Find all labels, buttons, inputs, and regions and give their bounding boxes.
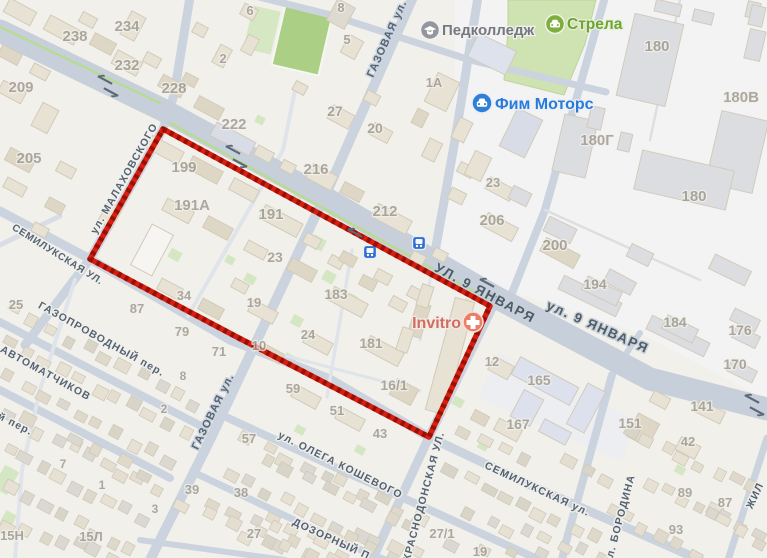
svg-text:51: 51 xyxy=(330,403,344,418)
svg-text:39: 39 xyxy=(185,482,199,497)
svg-text:15Н: 15Н xyxy=(0,528,24,543)
svg-text:205: 205 xyxy=(16,150,41,167)
svg-text:8: 8 xyxy=(180,369,187,383)
svg-text:25: 25 xyxy=(9,297,23,312)
svg-text:238: 238 xyxy=(62,28,87,45)
svg-text:71: 71 xyxy=(212,344,226,359)
svg-text:2: 2 xyxy=(161,402,168,416)
svg-text:5: 5 xyxy=(343,32,350,47)
svg-text:167: 167 xyxy=(506,416,530,432)
svg-text:234: 234 xyxy=(114,18,140,35)
svg-text:93: 93 xyxy=(669,522,683,537)
svg-text:15Л: 15Л xyxy=(79,529,103,544)
svg-text:216: 216 xyxy=(303,161,328,178)
svg-text:206: 206 xyxy=(479,212,504,229)
svg-text:23: 23 xyxy=(267,249,283,265)
svg-text:10: 10 xyxy=(252,338,266,353)
svg-text:Стрела: Стрела xyxy=(567,16,623,33)
svg-text:87: 87 xyxy=(718,495,732,510)
svg-text:27/1: 27/1 xyxy=(429,526,454,541)
svg-text:16/1: 16/1 xyxy=(380,377,407,393)
svg-text:165: 165 xyxy=(527,372,551,388)
svg-text:191: 191 xyxy=(258,206,283,223)
svg-text:27: 27 xyxy=(247,526,261,541)
svg-text:183: 183 xyxy=(324,286,348,302)
svg-text:7: 7 xyxy=(60,457,67,471)
svg-text:141: 141 xyxy=(690,398,714,414)
svg-text:19: 19 xyxy=(473,544,487,558)
svg-text:57: 57 xyxy=(242,431,256,446)
svg-text:Фим Моторс: Фим Моторс xyxy=(495,96,594,113)
svg-text:1: 1 xyxy=(99,478,106,492)
svg-text:170: 170 xyxy=(723,356,747,372)
svg-text:184: 184 xyxy=(663,314,687,330)
svg-text:212: 212 xyxy=(372,203,397,220)
svg-text:180В: 180В xyxy=(723,89,759,106)
svg-text:Invitro: Invitro xyxy=(412,315,461,332)
svg-text:8: 8 xyxy=(337,0,344,15)
svg-text:59: 59 xyxy=(286,381,300,396)
svg-text:89: 89 xyxy=(678,485,692,500)
svg-text:12: 12 xyxy=(485,354,499,369)
svg-text:43: 43 xyxy=(373,426,387,441)
svg-text:6: 6 xyxy=(246,3,253,18)
svg-text:3: 3 xyxy=(152,502,159,516)
svg-text:222: 222 xyxy=(221,116,246,133)
svg-text:27: 27 xyxy=(327,103,343,119)
svg-text:232: 232 xyxy=(114,57,139,74)
svg-text:Педколледж: Педколледж xyxy=(442,22,534,39)
svg-text:228: 228 xyxy=(161,80,186,97)
svg-text:176: 176 xyxy=(728,322,752,338)
svg-text:19: 19 xyxy=(247,295,261,310)
svg-text:1А: 1А xyxy=(426,75,443,90)
svg-text:180: 180 xyxy=(644,38,669,55)
svg-text:209: 209 xyxy=(8,79,33,96)
svg-text:42: 42 xyxy=(681,434,695,449)
svg-text:199: 199 xyxy=(171,159,196,176)
svg-text:23: 23 xyxy=(486,175,500,190)
svg-text:194: 194 xyxy=(583,276,607,292)
svg-text:38: 38 xyxy=(234,485,248,500)
svg-text:151: 151 xyxy=(618,415,642,431)
svg-text:200: 200 xyxy=(542,237,567,254)
svg-text:191А: 191А xyxy=(174,197,210,214)
svg-text:2: 2 xyxy=(219,51,226,66)
svg-text:24: 24 xyxy=(301,327,316,342)
svg-text:79: 79 xyxy=(175,324,189,339)
svg-text:20: 20 xyxy=(367,120,383,136)
svg-text:181: 181 xyxy=(359,335,383,351)
svg-text:180Г: 180Г xyxy=(580,132,614,149)
svg-text:34: 34 xyxy=(177,288,192,303)
svg-text:180: 180 xyxy=(681,188,706,205)
svg-text:87: 87 xyxy=(130,301,144,316)
